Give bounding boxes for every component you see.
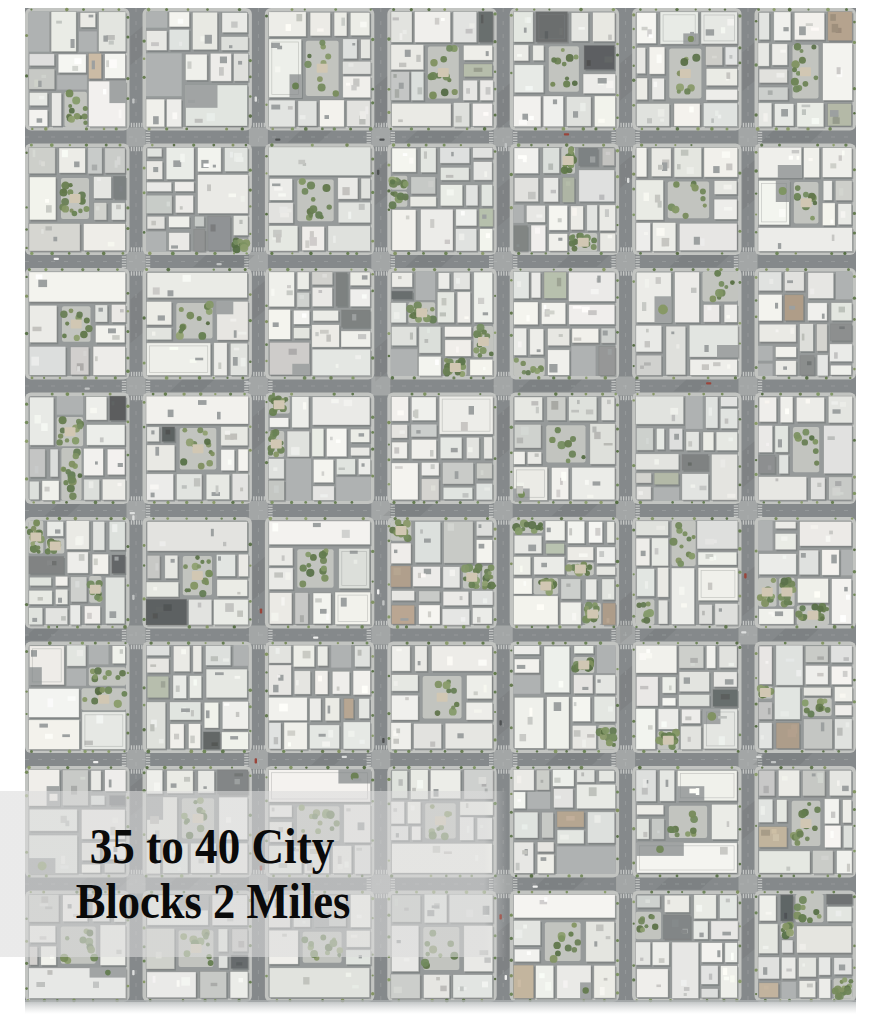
svg-text:Blocks 2 Miles: Blocks 2 Miles xyxy=(76,873,351,929)
svg-text:35 to 40 City: 35 to 40 City xyxy=(90,818,335,874)
